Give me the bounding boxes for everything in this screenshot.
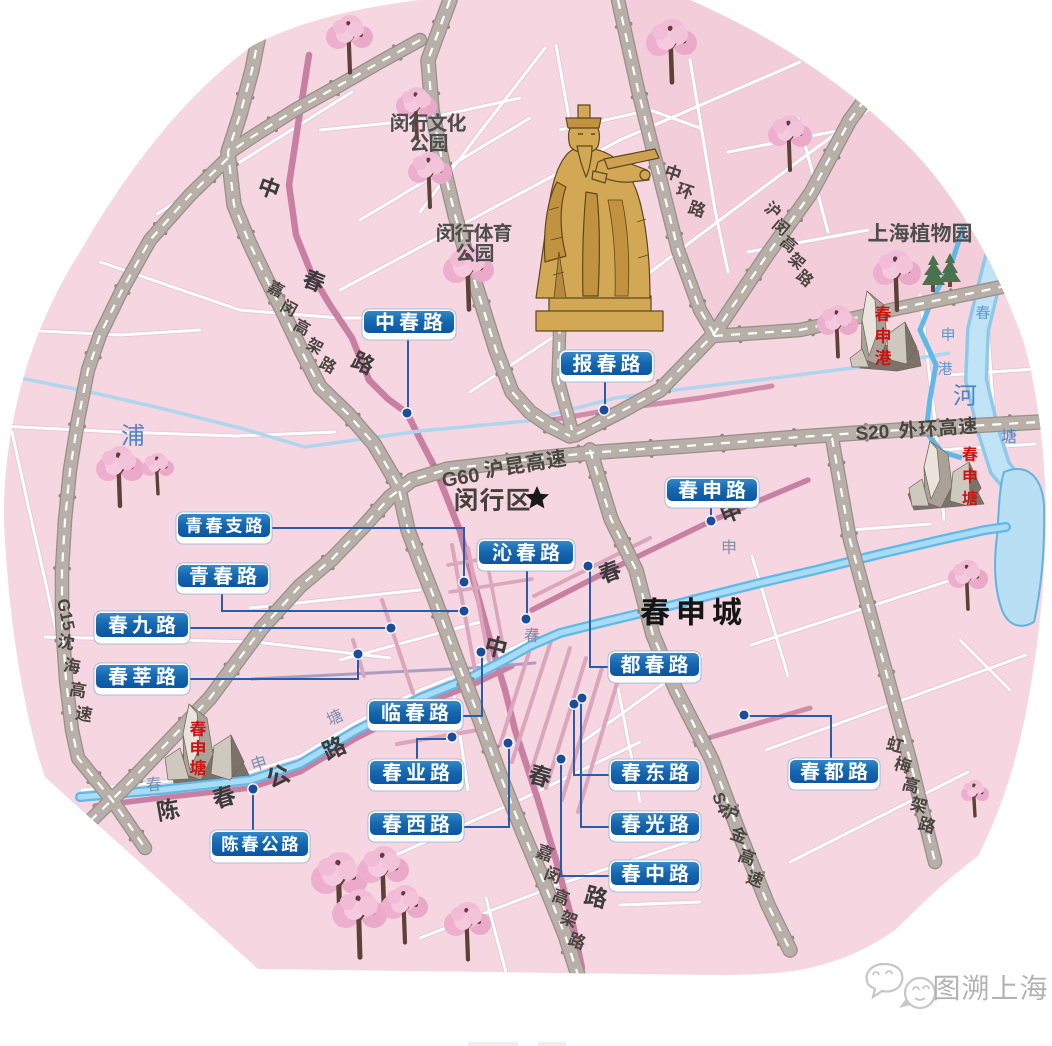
svg-text:S20: S20 — [855, 422, 890, 445]
